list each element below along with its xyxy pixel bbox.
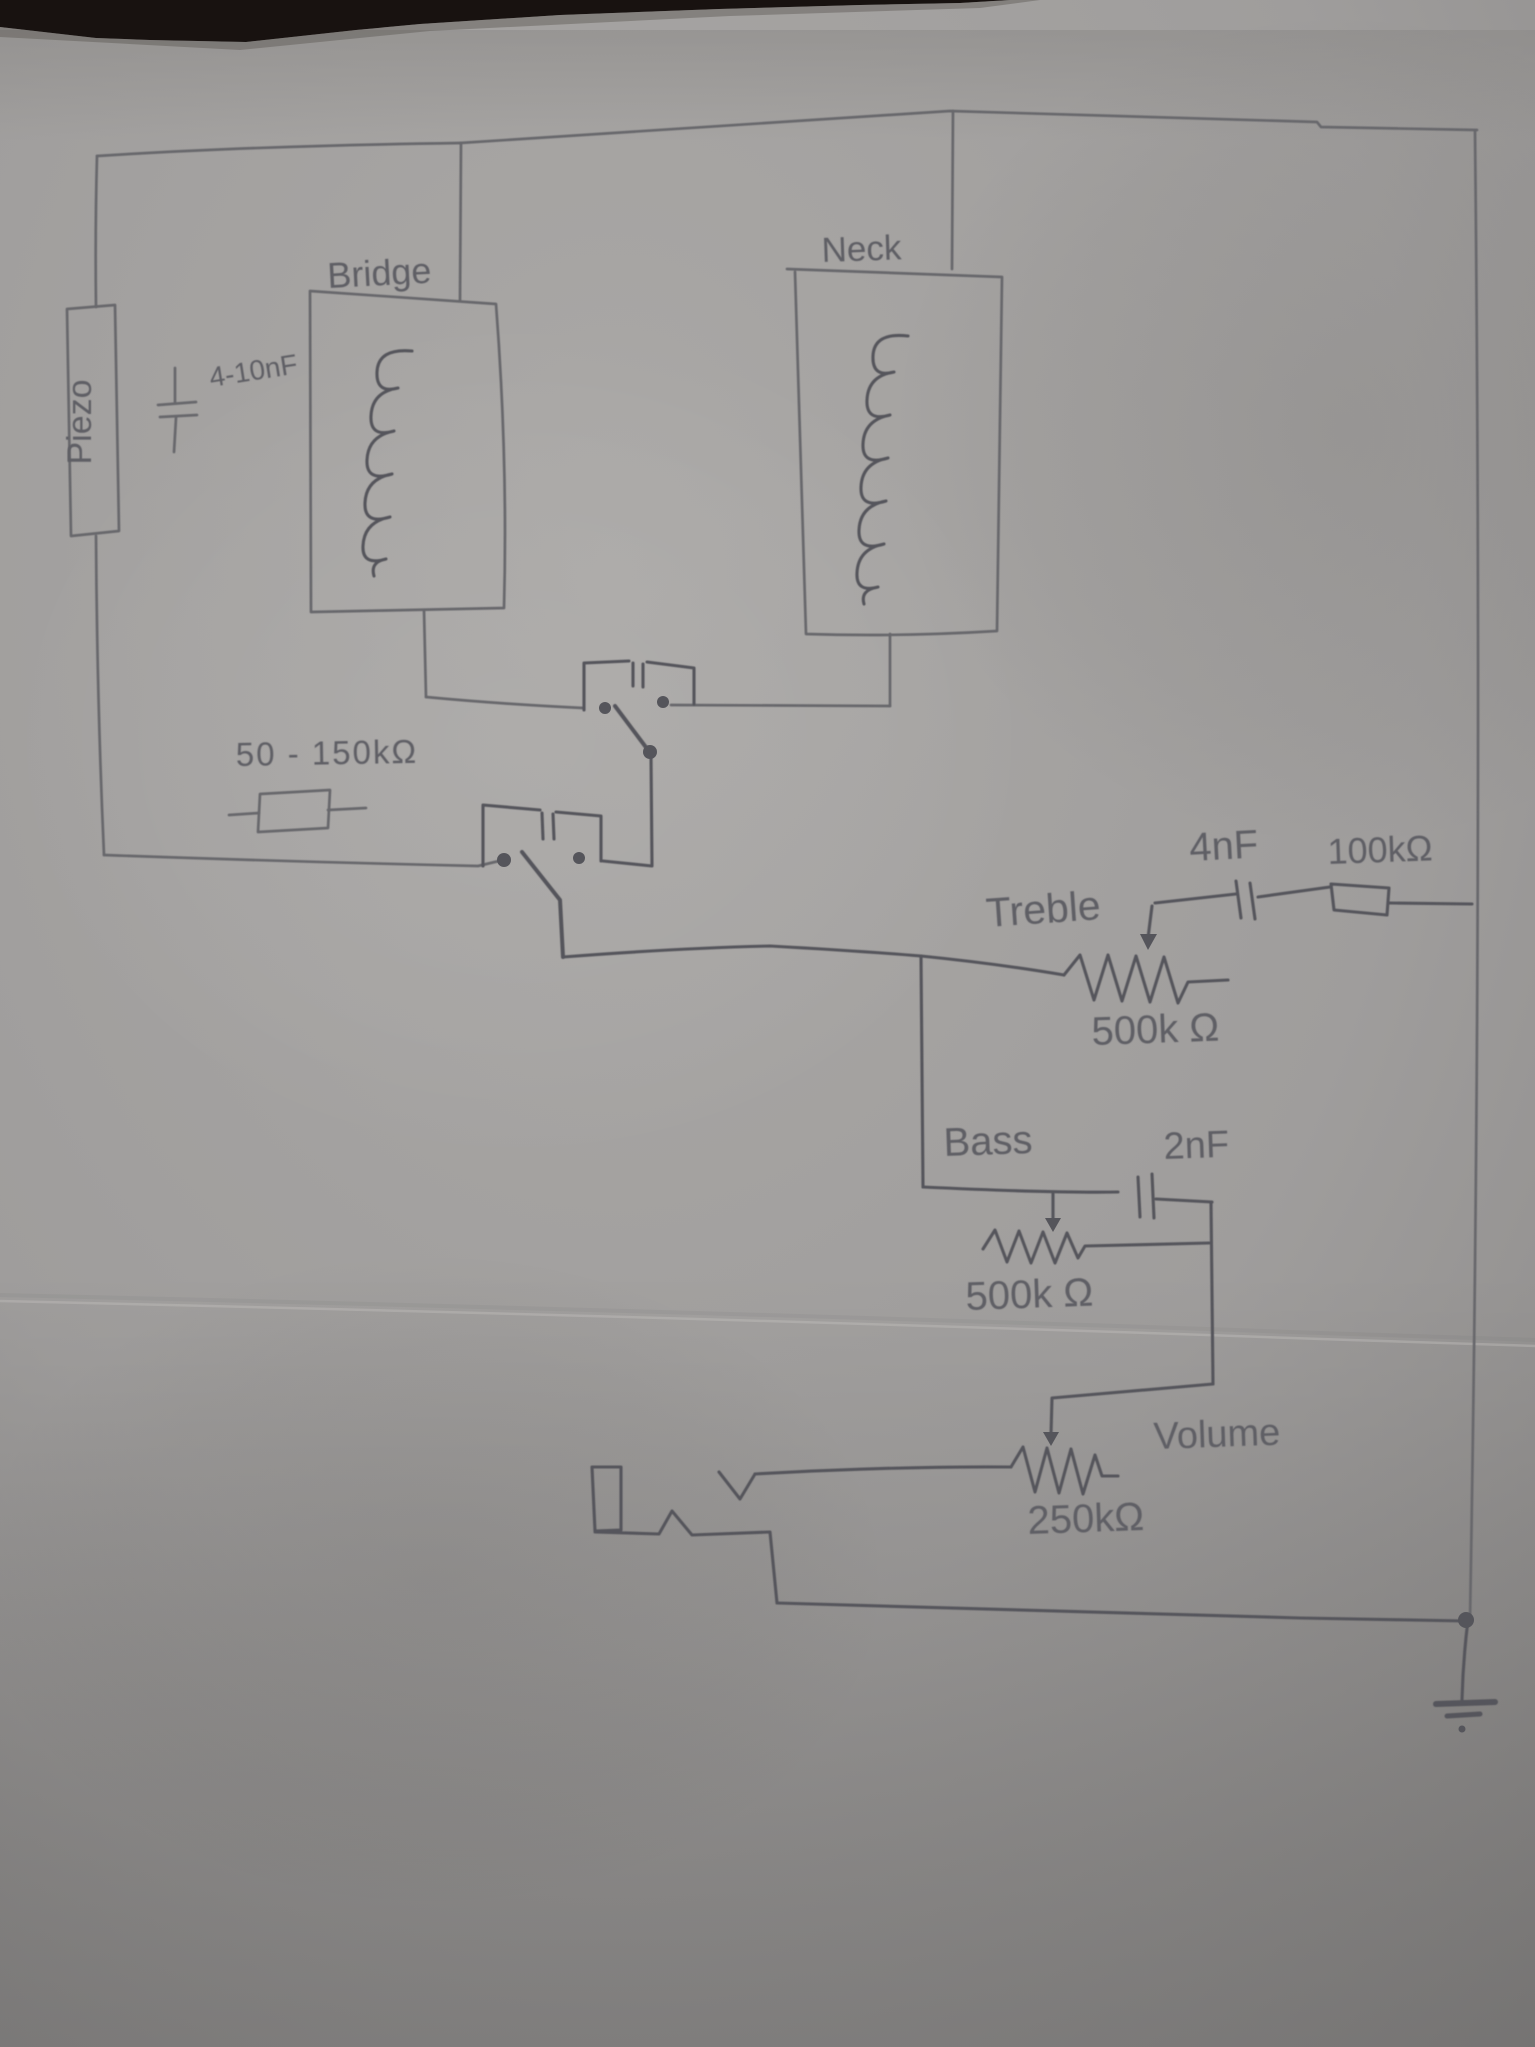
svg-text:50 - 150kΩ: 50 - 150kΩ: [235, 733, 418, 773]
svg-text:500k Ω: 500k Ω: [965, 1271, 1094, 1319]
svg-text:4nF: 4nF: [1188, 822, 1259, 870]
svg-text:Piezo: Piezo: [61, 379, 99, 464]
svg-text:Bass: Bass: [943, 1118, 1033, 1165]
svg-text:100kΩ: 100kΩ: [1327, 827, 1433, 872]
svg-text:500k Ω: 500k Ω: [1091, 1006, 1220, 1054]
svg-text:250kΩ: 250kΩ: [1027, 1495, 1145, 1543]
svg-text:2nF: 2nF: [1163, 1124, 1230, 1168]
svg-text:Bridge: Bridge: [326, 250, 432, 296]
svg-text:Neck: Neck: [821, 228, 903, 270]
svg-text:Treble: Treble: [984, 882, 1102, 936]
svg-text:Volume: Volume: [1153, 1412, 1281, 1458]
